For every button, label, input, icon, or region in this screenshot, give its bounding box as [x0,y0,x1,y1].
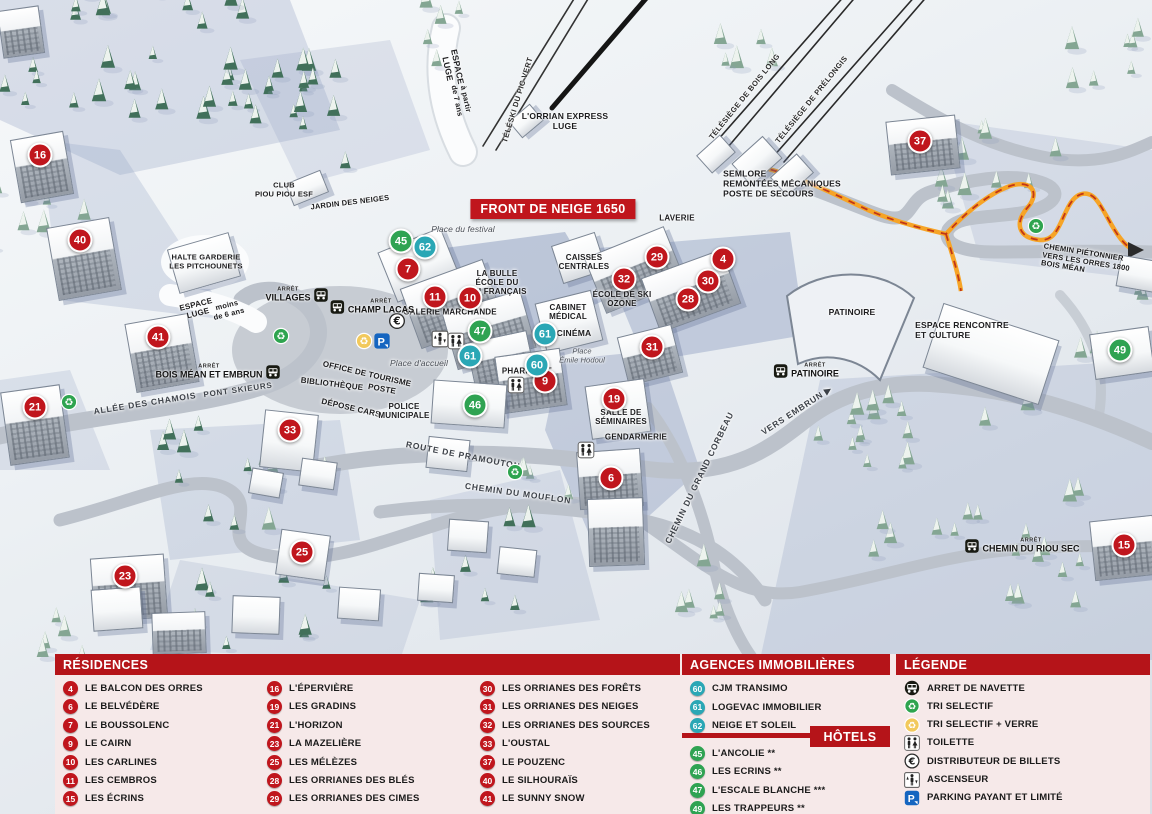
map-label: ESPACE RENCONTRE ET CULTURE [915,321,1009,341]
hotel-item: 49LES TRAPPEURS ** [690,801,805,814]
item-label: LES MÉLÈZES [289,757,357,768]
residence-item: 15LES ÉCRINS [63,791,144,806]
map-marker-33: 33 [278,418,303,443]
toilet-icon [578,442,595,459]
residence-item: 11LES CEMBROS [63,773,157,788]
item-label: LES ORRIANES DES NEIGES [502,701,639,712]
map-label: HALTE GARDERIE LES PITCHOUNETS [169,253,242,270]
parking-icon: P [904,790,920,806]
map-label: SEMLORE REMONTÉES MÉCANIQUES POSTE DE SE… [723,169,841,198]
number-badge: 41 [480,791,495,806]
map-marker-19: 19 [602,387,627,412]
map-marker-30: 30 [696,269,721,294]
bus-icon [314,288,329,303]
item-label: LE BELVÉDÈRE [85,701,160,712]
map-marker-60: 60 [525,353,550,378]
resort-map: ESPACE LUGEà partir de 7 ansTÉLÉSKI DU P… [0,0,1152,814]
residences-title: RÉSIDENCES [55,654,680,675]
stop-name: BOIS MÉAN ET EMBRUN [155,370,262,379]
building [337,587,381,622]
toilet-icon [508,377,525,394]
svg-text:♻: ♻ [64,398,73,409]
residence-item: 25LES MÉLÈZES [267,755,357,770]
map-label: LAVERIE [659,213,694,222]
item-label: LE SILHOURAÏS [502,775,578,786]
number-badge: 29 [267,791,282,806]
map-label: CABINET MÉDICAL [549,303,587,321]
map-marker-49: 49 [1108,338,1133,363]
bus-icon [266,365,281,380]
recycle-green-icon: ♻ [61,394,78,411]
front-de-neige-banner: FRONT DE NEIGE 1650 [470,199,635,219]
building [91,586,144,631]
legende-item: TOILETTE [904,735,974,751]
item-label: LES ORRIANES DES FORÊTS [502,683,641,694]
item-label: LA MAZELIÈRE [289,738,361,749]
number-badge: 62 [690,718,705,733]
legende-section: LÉGENDE ARRET DE NAVETTE♻TRI SELECTIF♻TR… [896,654,1150,814]
map-marker-47: 47 [468,319,493,344]
number-badge: 46 [690,764,705,779]
number-badge: 7 [63,718,78,733]
building [417,573,455,603]
legende-label: TRI SELECTIF [927,701,993,712]
map-label: L'ORRIAN EXPRESS LUGE [522,112,608,132]
legende-label: ARRET DE NAVETTE [927,683,1025,694]
svg-text:♻: ♻ [510,468,519,479]
item-label: CJM TRANSIMO [712,683,788,694]
number-badge: 9 [63,736,78,751]
number-badge: 60 [690,681,705,696]
number-badge: 16 [267,681,282,696]
map-marker-16: 16 [28,143,53,168]
map-label: Place Émile Hodoul [559,347,605,364]
legende-label: DISTRIBUTEUR DE BILLETS [927,756,1060,767]
item-label: LES CEMBROS [85,775,157,786]
legende-label: TOILETTE [927,737,974,748]
svg-text:P: P [377,336,384,348]
residence-item: 31LES ORRIANES DES NEIGES [480,699,639,714]
residence-item: 41LE SUNNY SNOW [480,791,585,806]
legende-item: ASCENSEUR [904,772,988,788]
svg-text:P: P [908,794,915,805]
agence-item: 62NEIGE ET SOLEIL [690,718,796,733]
residence-item: 32LES ORRIANES DES SOURCES [480,718,650,733]
number-badge: 61 [690,700,705,715]
number-badge: 25 [267,755,282,770]
hotel-item: 45L'ANCOLIE ** [690,746,775,761]
parking-icon: P [374,333,391,350]
hotel-item: 47L'ESCALE BLANCHE *** [690,783,825,798]
item-label: LES GRADINS [289,701,356,712]
bus-icon [964,539,979,554]
item-label: LE SUNNY SNOW [502,793,585,804]
legende-title: LÉGENDE [896,654,1150,675]
legende-item: ♻TRI SELECTIF [904,698,993,714]
building [231,595,280,635]
number-badge: 19 [267,699,282,714]
item-label: LES ORRIANES DES BLÉS [289,775,415,786]
residence-item: 10LES CARLINES [63,755,157,770]
agence-item: 61LOGEVAC IMMOBILIER [690,700,822,715]
item-label: L'ESCALE BLANCHE *** [712,785,825,796]
map-label: Place du festival [431,225,495,235]
bus-icon [773,364,788,379]
item-label: LES ÉCRINS [85,793,144,804]
bus-stop-chemin-du-riou-sec: ARRÊTCHEMIN DU RIOU SEC [964,539,1079,554]
item-label: LES TRAPPEURS ** [712,803,805,814]
residence-item: 37LE POUZENC [480,755,565,770]
map-label: POLICE MUNICIPALE [378,402,429,420]
map-marker-25: 25 [290,540,315,565]
hotel-item: 46LES ECRINS ** [690,764,782,779]
map-marker-4: 4 [711,247,736,272]
map-label: CINÉMA [557,329,592,339]
toilet-icon [904,735,920,751]
map-marker-61: 61 [458,344,483,369]
number-badge: 4 [63,681,78,696]
item-label: LES ORRIANES DES CIMES [289,793,420,804]
item-label: LE CAIRN [85,738,131,749]
map-marker-15: 15 [1112,533,1137,558]
svg-text:♻: ♻ [908,702,917,713]
svg-text:♻: ♻ [276,332,285,343]
agences-section: AGENCES IMMOBILIÈRES 60CJM TRANSIMO61LOG… [682,654,890,814]
legende-label: TRI SELECTIF + VERRE [927,719,1038,730]
svg-text:♻: ♻ [359,337,368,348]
residence-item: 6LE BELVÉDÈRE [63,699,160,714]
number-badge: 15 [63,791,78,806]
residences-section: RÉSIDENCES 4LE BALCON DES ORRES6LE BELVÉ… [55,654,680,814]
recycle-green-icon: ♻ [904,698,920,714]
bus-stop-patinoire: ARRÊTPATINOIRE [773,364,839,379]
ski-lift-lines [483,0,929,162]
map-marker-28: 28 [676,287,701,312]
euro-icon: € [389,313,406,330]
map-marker-31: 31 [640,335,665,360]
item-label: LES CARLINES [85,757,157,768]
item-label: L'ÉPERVIÈRE [289,683,353,694]
legende-item: PPARKING PAYANT ET LIMITÉ [904,790,1063,806]
number-badge: 6 [63,699,78,714]
map-marker-37: 37 [908,129,933,154]
map-label: SALLE DE SÉMINAIRES [595,408,647,426]
stop-name: VILLAGES [265,293,310,302]
item-label: L'OUSTAL [502,738,550,749]
building [248,467,284,498]
number-badge: 45 [690,746,705,761]
bus-stop-bois-m-an-et-embrun: ARRÊTBOIS MÉAN ET EMBRUN [155,365,280,380]
recycle-green-icon: ♻ [507,464,524,481]
residence-item: 30LES ORRIANES DES FORÊTS [480,681,641,696]
map-marker-62: 62 [413,235,438,260]
legende-item: ♻TRI SELECTIF + VERRE [904,717,1038,733]
number-badge: 40 [480,773,495,788]
item-label: LE POUZENC [502,757,565,768]
item-label: L'ANCOLIE ** [712,748,775,759]
svg-text:♻: ♻ [908,720,917,731]
map-marker-7: 7 [396,257,421,282]
item-label: LE BALCON DES ORRES [85,683,203,694]
item-label: LES ECRINS ** [712,766,782,777]
map-marker-40: 40 [68,228,93,253]
map-marker-32: 32 [612,267,637,292]
item-label: NEIGE ET SOLEIL [712,720,796,731]
map-marker-10: 10 [458,286,483,311]
residence-item: 7LE BOUSSOLENC [63,718,169,733]
residence-item: 19LES GRADINS [267,699,356,714]
stop-name: CHEMIN DU RIOU SEC [982,544,1079,553]
residence-item: 21L'HORIZON [267,718,343,733]
elevator-icon [904,772,920,788]
number-badge: 28 [267,773,282,788]
number-badge: 47 [690,783,705,798]
map-marker-61: 61 [533,322,558,347]
map-label: PATINOIRE [829,308,876,318]
bus-stop-champ-lacas: ARRÊTCHAMP LACAS [330,300,414,315]
map-marker-23: 23 [113,564,138,589]
number-badge: 23 [267,736,282,751]
number-badge: 11 [63,773,78,788]
building [0,5,45,58]
residence-item: 16L'ÉPERVIÈRE [267,681,353,696]
stop-name: PATINOIRE [791,369,839,378]
building [298,458,338,491]
residence-item: 4LE BALCON DES ORRES [63,681,203,696]
map-marker-11: 11 [423,285,448,310]
stop-name: CHAMP LACAS [348,305,414,314]
number-badge: 49 [690,801,705,814]
legende-item: €DISTRIBUTEUR DE BILLETS [904,753,1060,769]
legende-label: ASCENSEUR [927,774,988,785]
number-badge: 37 [480,755,495,770]
number-badge: 32 [480,718,495,733]
map-label: CAISSES CENTRALES [559,253,610,271]
elevator-icon [432,331,449,348]
bus-icon [330,300,345,315]
building [447,519,489,554]
item-label: LES ORRIANES DES SOURCES [502,720,650,731]
recycle-yellow-icon: ♻ [904,717,920,733]
map-marker-29: 29 [645,245,670,270]
residence-item: 29LES ORRIANES DES CIMES [267,791,420,806]
residence-item: 28LES ORRIANES DES BLÉS [267,773,415,788]
map-marker-46: 46 [463,393,488,418]
number-badge: 31 [480,699,495,714]
map-label: Place d'accueil [390,359,448,369]
map-label: GENDARMERIE [605,432,667,441]
recycle-green-icon: ♻ [1028,218,1045,235]
number-badge: 21 [267,718,282,733]
residence-item: 23LA MAZELIÈRE [267,736,361,751]
map-marker-6: 6 [599,466,624,491]
recycle-green-icon: ♻ [273,328,290,345]
svg-text:€: € [908,757,916,768]
bus-icon [904,680,920,696]
building [151,611,206,655]
building [497,546,538,578]
legende-item: ARRET DE NAVETTE [904,680,1025,696]
residence-item: 33L'OUSTAL [480,736,550,751]
agence-item: 60CJM TRANSIMO [690,681,788,696]
bus-stop-villages: ARRÊTVILLAGES [265,288,328,303]
item-label: L'HORIZON [289,720,343,731]
residence-item: 40LE SILHOURAÏS [480,773,578,788]
item-label: LE BOUSSOLENC [85,720,169,731]
map-marker-21: 21 [23,395,48,420]
number-badge: 30 [480,681,495,696]
number-badge: 33 [480,736,495,751]
map-marker-45: 45 [389,229,414,254]
building [587,497,645,567]
map-marker-41: 41 [146,325,171,350]
legende-label: PARKING PAYANT ET LIMITÉ [927,792,1063,803]
item-label: LOGEVAC IMMOBILIER [712,702,822,713]
map-label: ÉCOLE DE SKI OZONE [593,290,652,308]
map-label: GALERIE MARCHANDE [403,307,497,316]
map-label: CLUB PIOU PIOU ESF [255,181,313,198]
agences-title: AGENCES IMMOBILIÈRES [682,654,890,675]
svg-text:€: € [392,317,400,328]
residence-item: 9LE CAIRN [63,736,131,751]
hotels-title: HÔTELS [810,726,890,747]
recycle-yellow-icon: ♻ [356,333,373,350]
svg-text:♻: ♻ [1031,222,1040,233]
number-badge: 10 [63,755,78,770]
legend-panel: RÉSIDENCES 4LE BALCON DES ORRES6LE BELVÉ… [55,654,1150,814]
euro-icon: € [904,753,920,769]
